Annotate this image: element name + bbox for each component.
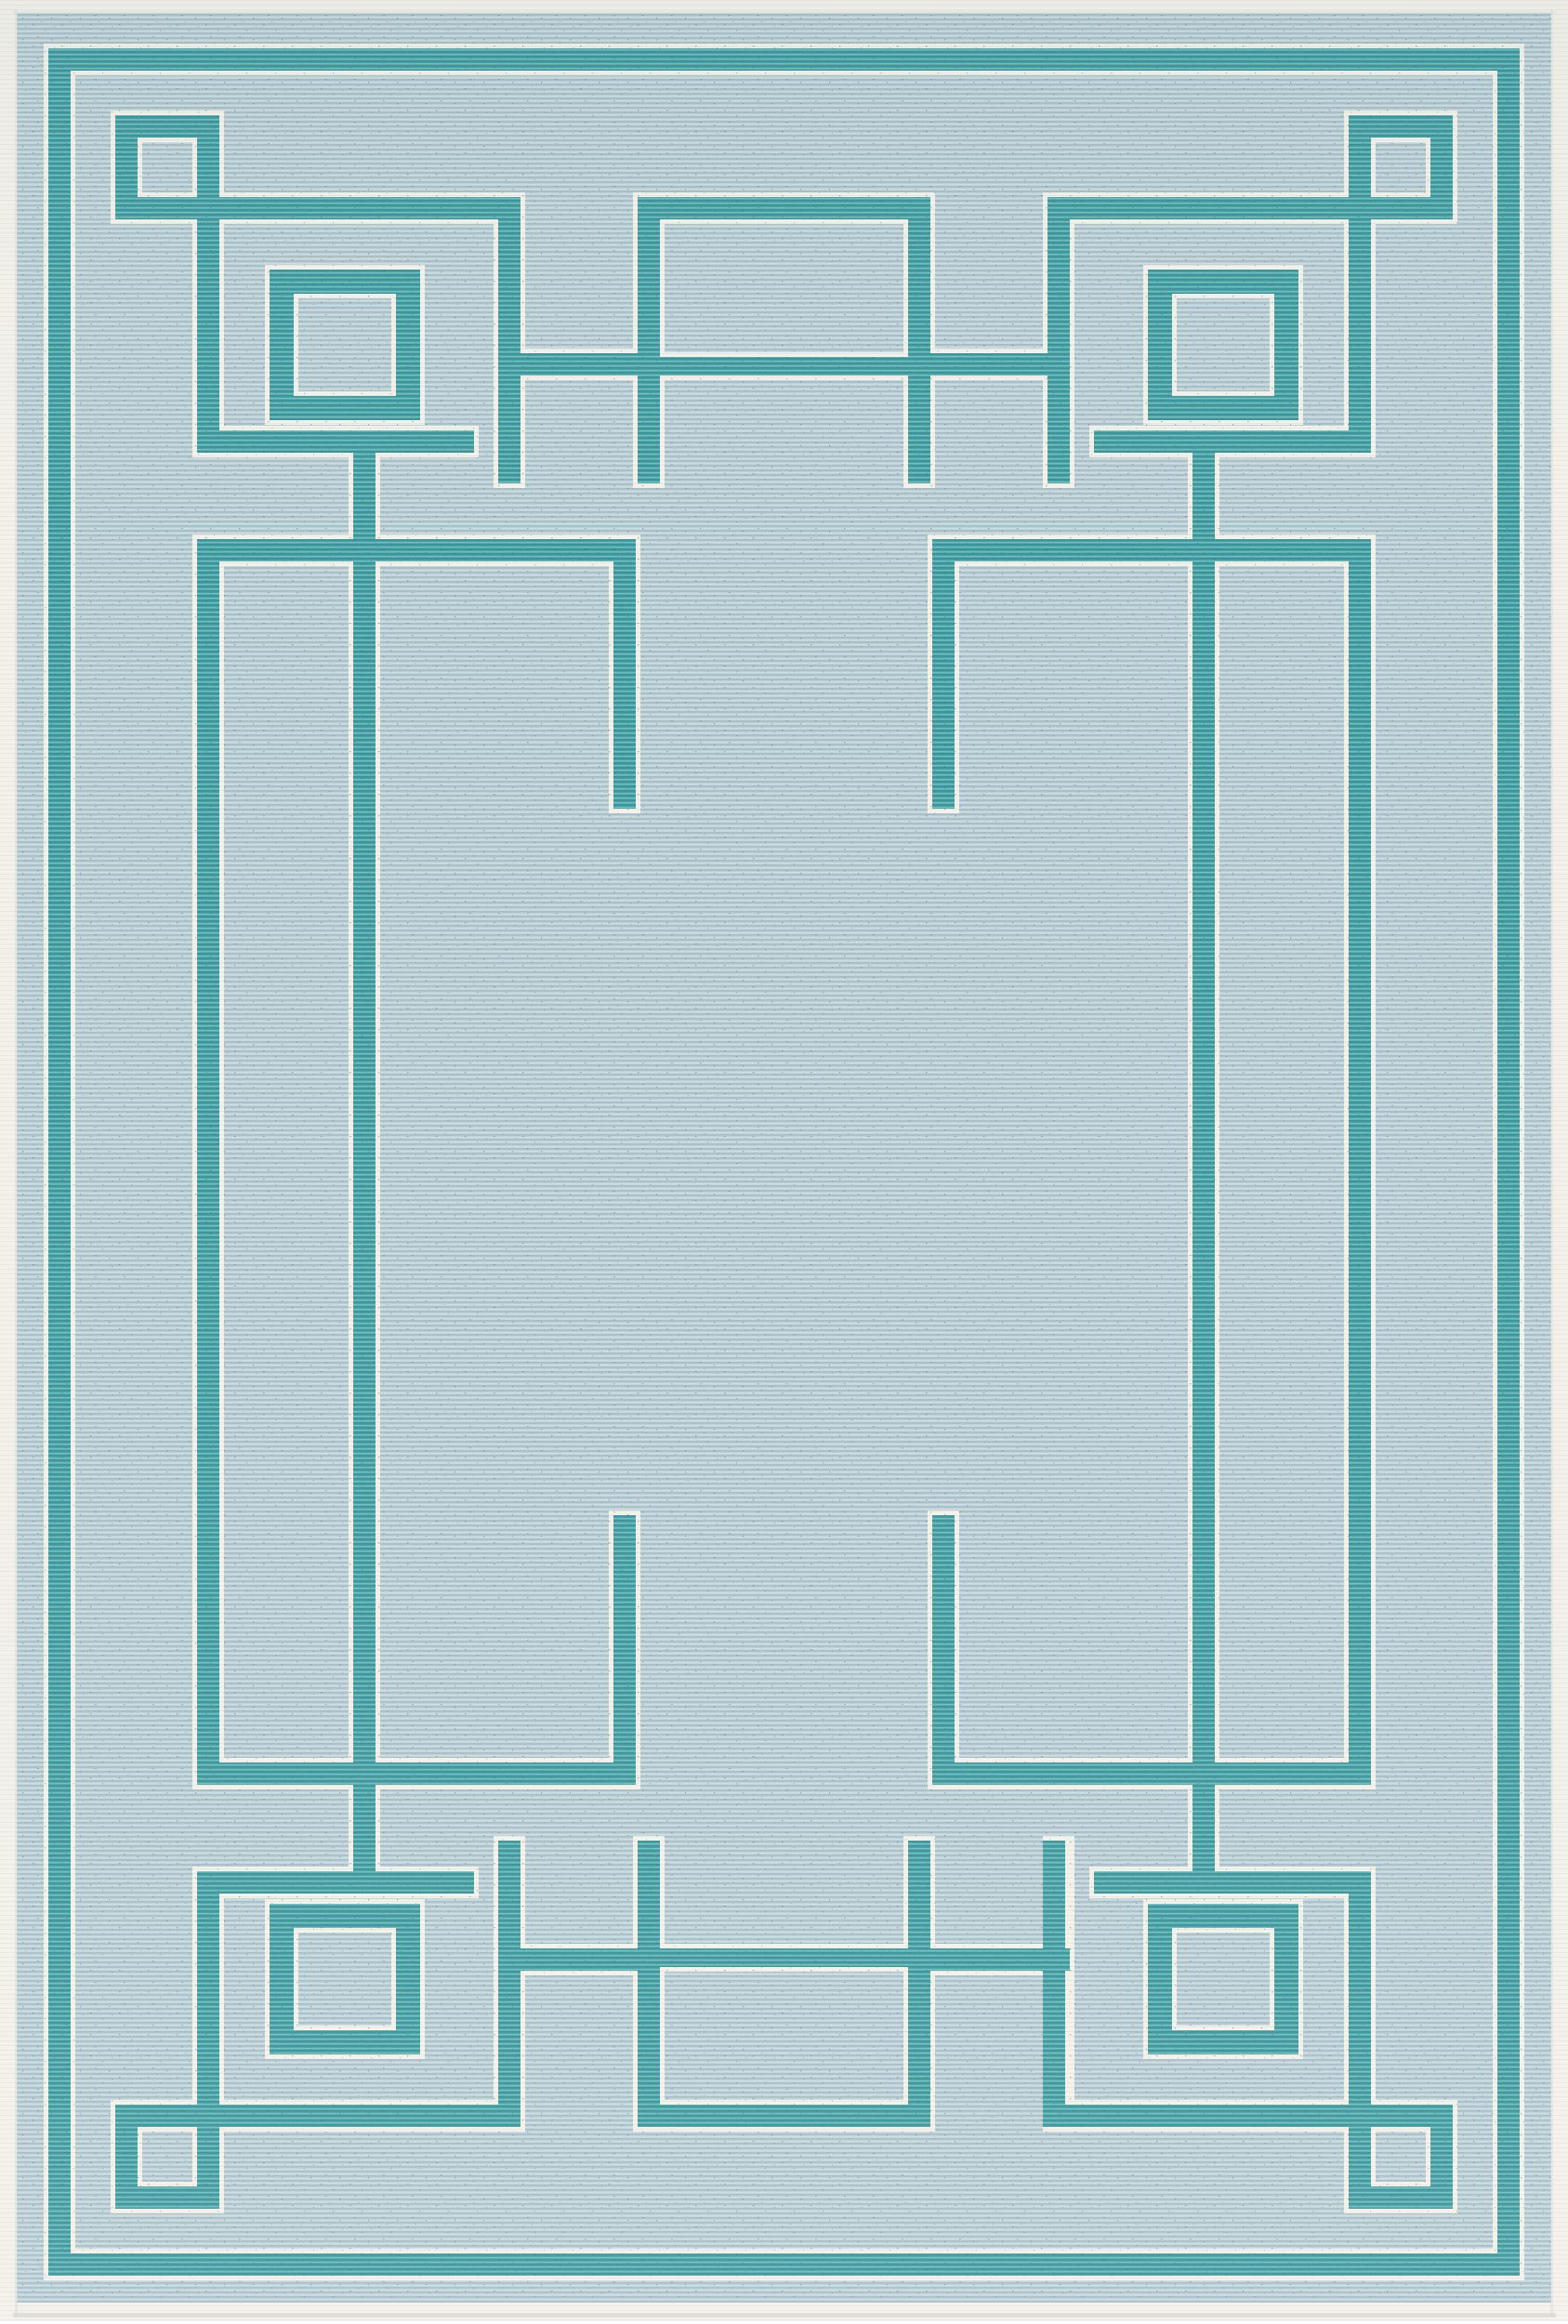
bottom-shadow: [13, 2313, 1556, 2317]
rug-photo: Aqua blue area rug with teal Art-Deco in…: [0, 0, 1568, 2324]
right-shadow: [1550, 9, 1553, 2317]
left-shadow: [15, 9, 18, 2317]
rug-image: [0, 0, 1568, 2324]
lighting-overlay: [0, 0, 1568, 2324]
top-shadow: [13, 11, 1556, 14]
